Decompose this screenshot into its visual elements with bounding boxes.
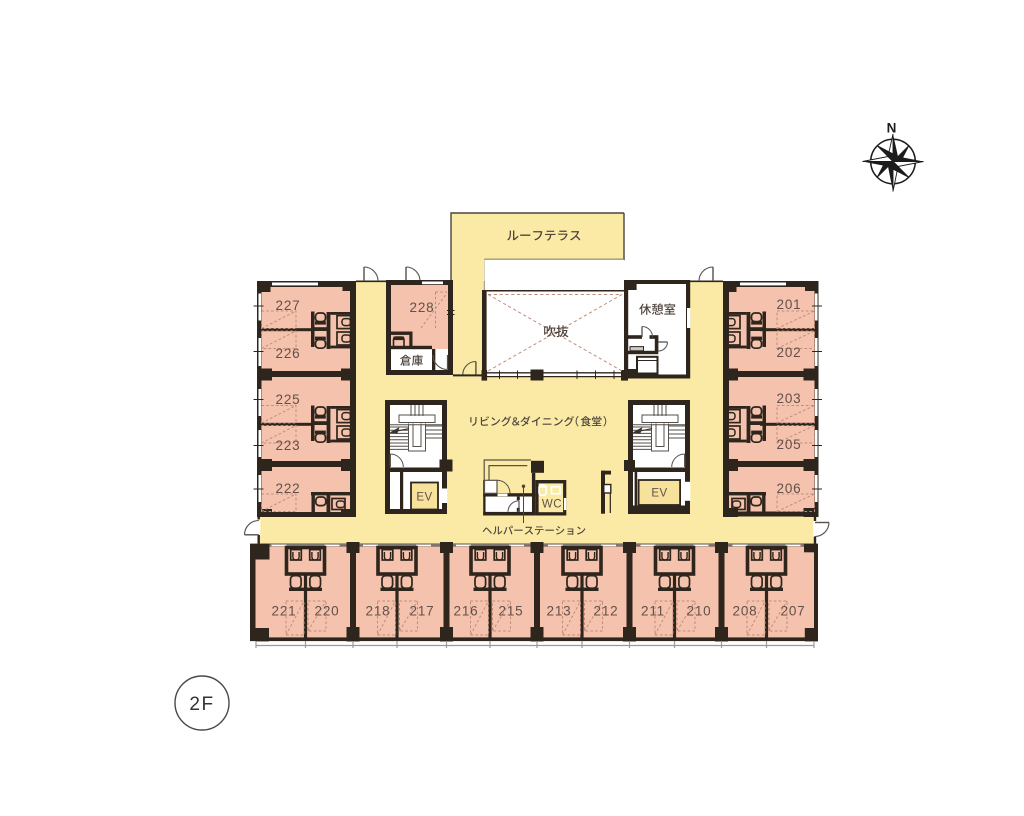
svg-text:2F: 2F [189, 694, 214, 715]
svg-text:223: 223 [276, 438, 301, 453]
svg-text:EV: EV [651, 488, 667, 500]
svg-text:218: 218 [366, 604, 391, 619]
svg-text:225: 225 [276, 392, 301, 407]
svg-text:217: 217 [410, 604, 435, 619]
svg-text:205: 205 [777, 437, 802, 452]
svg-text:201: 201 [777, 297, 802, 312]
svg-text:216: 216 [454, 604, 479, 619]
svg-text:210: 210 [687, 604, 712, 619]
svg-text:213: 213 [547, 604, 572, 619]
svg-text:WC: WC [542, 499, 562, 511]
svg-text:EV: EV [416, 492, 432, 504]
svg-text:227: 227 [276, 298, 301, 313]
svg-text:N: N [887, 121, 897, 136]
svg-text:208: 208 [733, 604, 758, 619]
svg-text:221: 221 [272, 604, 297, 619]
svg-text:220: 220 [315, 604, 340, 619]
svg-text:222: 222 [276, 481, 301, 496]
svg-text:212: 212 [594, 604, 619, 619]
svg-text:226: 226 [276, 346, 301, 361]
svg-text:215: 215 [499, 604, 524, 619]
svg-text:202: 202 [777, 345, 802, 360]
svg-text:228: 228 [410, 300, 435, 315]
svg-text:207: 207 [781, 604, 806, 619]
svg-text:203: 203 [777, 391, 802, 406]
svg-text:206: 206 [777, 481, 802, 496]
svg-text:211: 211 [641, 604, 665, 619]
